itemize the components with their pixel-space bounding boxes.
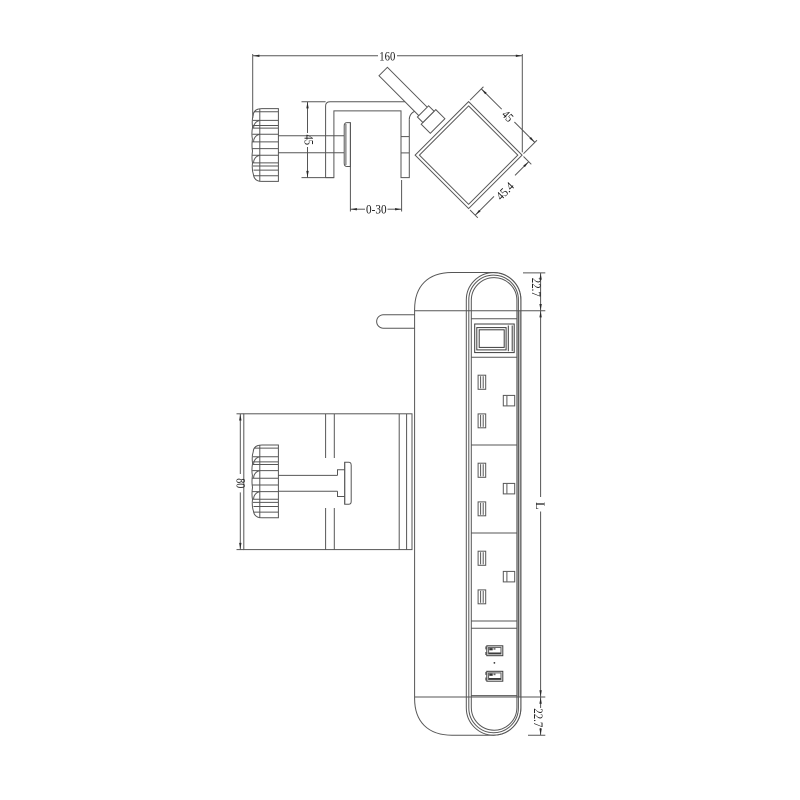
svg-text:80: 80 xyxy=(234,478,248,488)
svg-text:45: 45 xyxy=(499,108,516,125)
svg-text:45.4: 45.4 xyxy=(493,179,517,203)
svg-text:22.7: 22.7 xyxy=(531,708,545,727)
svg-text:0-30: 0-30 xyxy=(366,202,387,216)
svg-text:45: 45 xyxy=(302,135,316,146)
svg-text:22.7: 22.7 xyxy=(529,278,543,297)
svg-text:160: 160 xyxy=(379,49,395,63)
svg-text:L: L xyxy=(533,502,547,510)
